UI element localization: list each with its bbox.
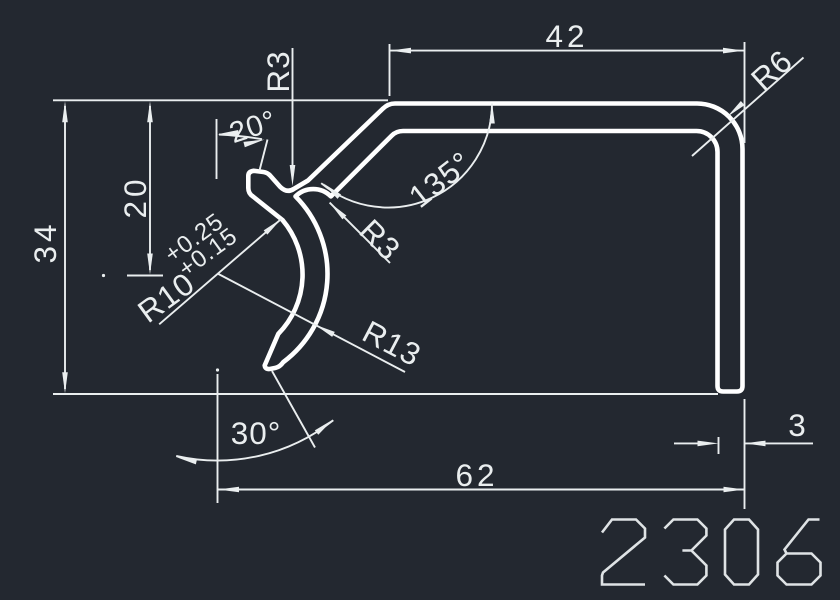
- svg-text:20: 20: [117, 175, 153, 218]
- svg-text:34: 34: [27, 220, 63, 263]
- svg-text:30°: 30°: [231, 415, 282, 451]
- svg-text:42: 42: [545, 18, 588, 54]
- svg-text:R3: R3: [260, 50, 296, 92]
- svg-text:62: 62: [455, 457, 498, 493]
- svg-text:3: 3: [788, 407, 810, 443]
